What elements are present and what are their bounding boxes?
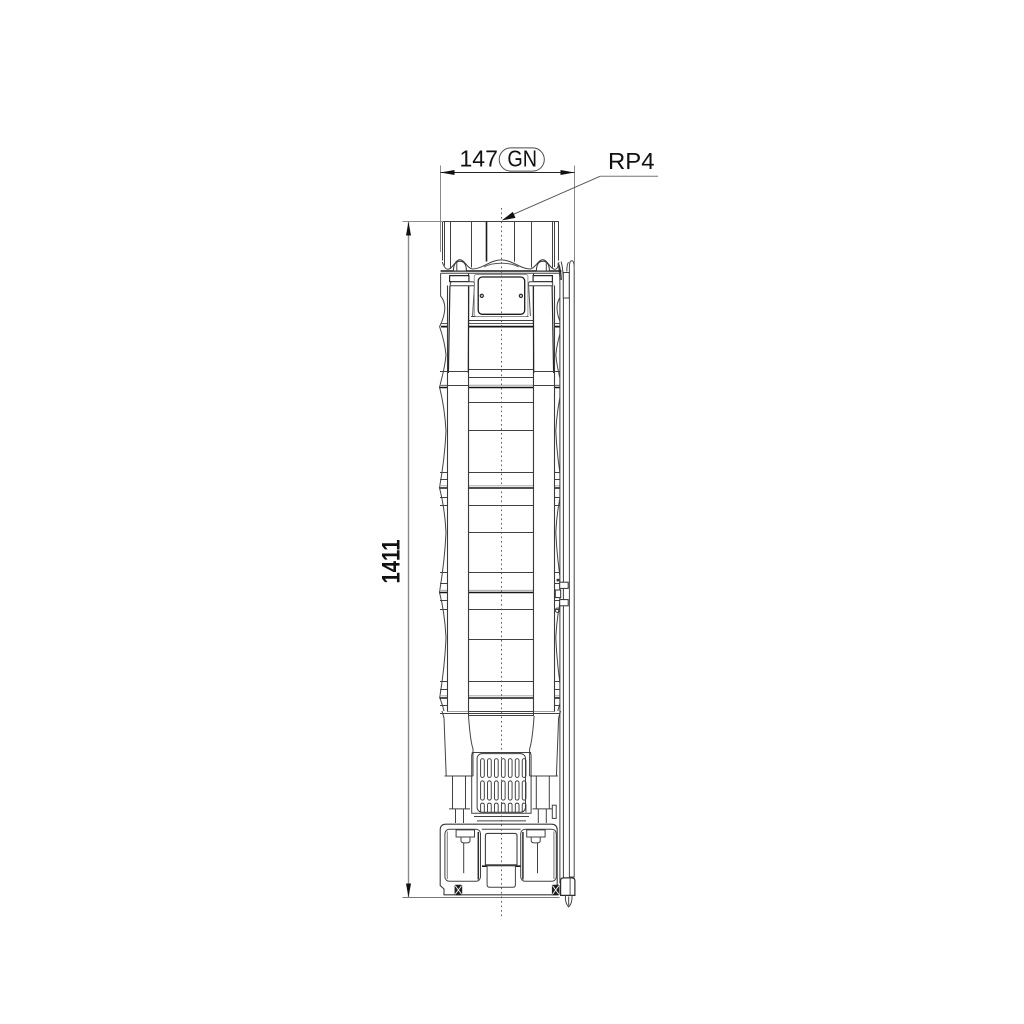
svg-text:RP4: RP4: [608, 148, 655, 174]
svg-text:1411: 1411: [378, 539, 406, 583]
svg-text:GN: GN: [507, 145, 537, 171]
svg-text:147: 147: [460, 146, 498, 172]
